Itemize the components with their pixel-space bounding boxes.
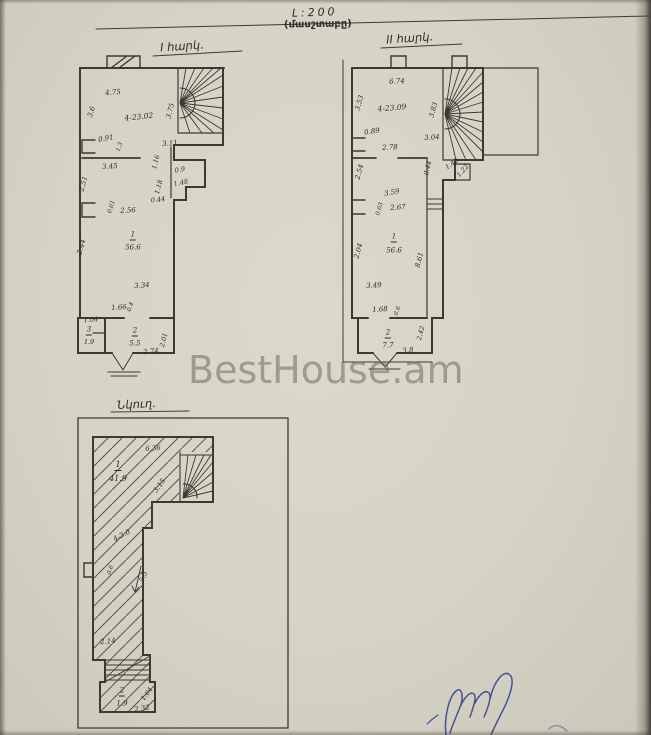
floor2-boundary bbox=[343, 60, 432, 362]
basement-plan-drawing bbox=[78, 418, 288, 728]
floor2-spiral-stairs bbox=[445, 68, 483, 160]
floor1-spiral-stairs bbox=[180, 68, 223, 133]
floor2-wall-niches bbox=[352, 138, 365, 214]
floor2-corridor-steps bbox=[427, 199, 443, 209]
scanned-document-page: Լ:200 (մասշտաբը) Ι հարկ. ΙΙ հարկ. Նկուղ.… bbox=[0, 0, 651, 735]
floor2-top-parapets bbox=[391, 56, 467, 68]
scale-caption: (մասշտաբը) bbox=[284, 18, 352, 30]
floor1-plan-drawing bbox=[78, 56, 224, 376]
watermark: BestHouse.am bbox=[188, 351, 464, 389]
floor1-wall-niches bbox=[82, 140, 95, 217]
floor2-adjacent-room bbox=[483, 68, 538, 155]
basement-title: Նկուղ. bbox=[117, 396, 157, 412]
floor1-entry-porch bbox=[107, 56, 140, 68]
scale-divider-line bbox=[96, 16, 649, 29]
floor1-entry-door bbox=[108, 353, 140, 376]
floor2-plan-drawing bbox=[343, 56, 538, 369]
scale-label: Լ:200 bbox=[292, 5, 338, 20]
signature bbox=[427, 673, 567, 735]
basement-wall-niche bbox=[84, 563, 93, 577]
